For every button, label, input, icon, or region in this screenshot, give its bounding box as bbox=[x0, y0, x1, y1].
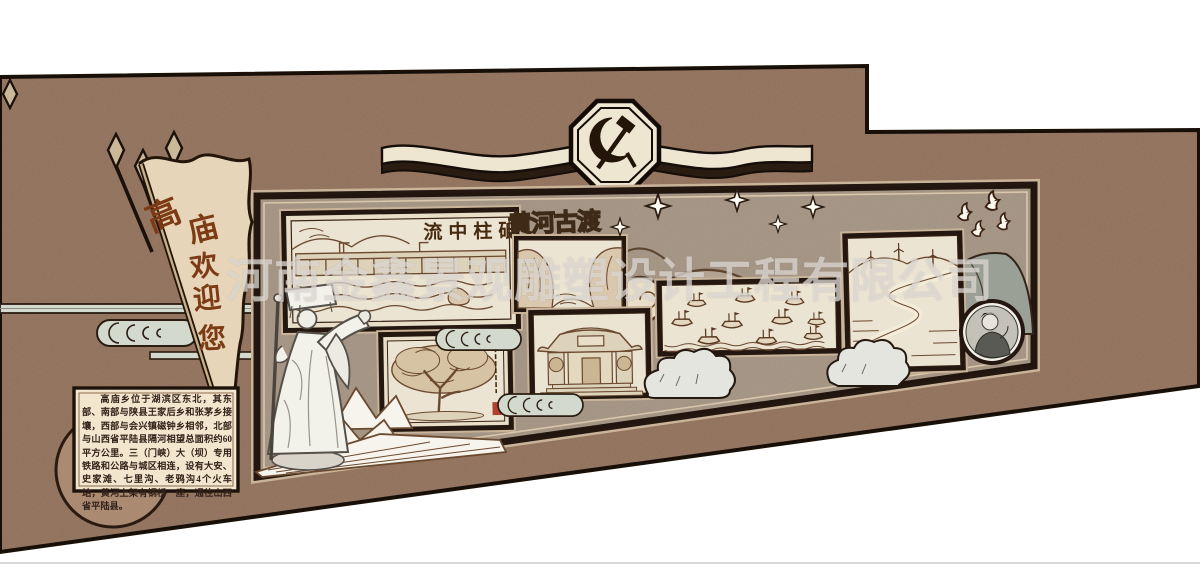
party-emblem bbox=[571, 101, 659, 189]
panel-photo bbox=[959, 299, 1025, 365]
panel-gorge-title: 黄河古渡 bbox=[508, 207, 603, 238]
svg-text:您: 您 bbox=[197, 321, 227, 355]
svg-text:欢: 欢 bbox=[187, 249, 222, 285]
info-box bbox=[74, 388, 238, 491]
svg-text:迎: 迎 bbox=[191, 281, 222, 316]
cultural-wall-rendering: 流中柱砥 黄河古渡 bbox=[0, 0, 1200, 567]
cloud-scroll-icon bbox=[498, 394, 583, 416]
design-canvas: 流中柱砥 黄河古渡 bbox=[0, 0, 1200, 567]
panel-temple bbox=[527, 307, 653, 401]
panel-boats bbox=[655, 276, 842, 357]
cloud-scroll-icon bbox=[97, 320, 197, 346]
panel-dam: 流中柱砥 bbox=[280, 206, 525, 334]
canvas-bottom-line bbox=[0, 562, 1200, 564]
cloud-scroll-icon bbox=[436, 328, 521, 350]
